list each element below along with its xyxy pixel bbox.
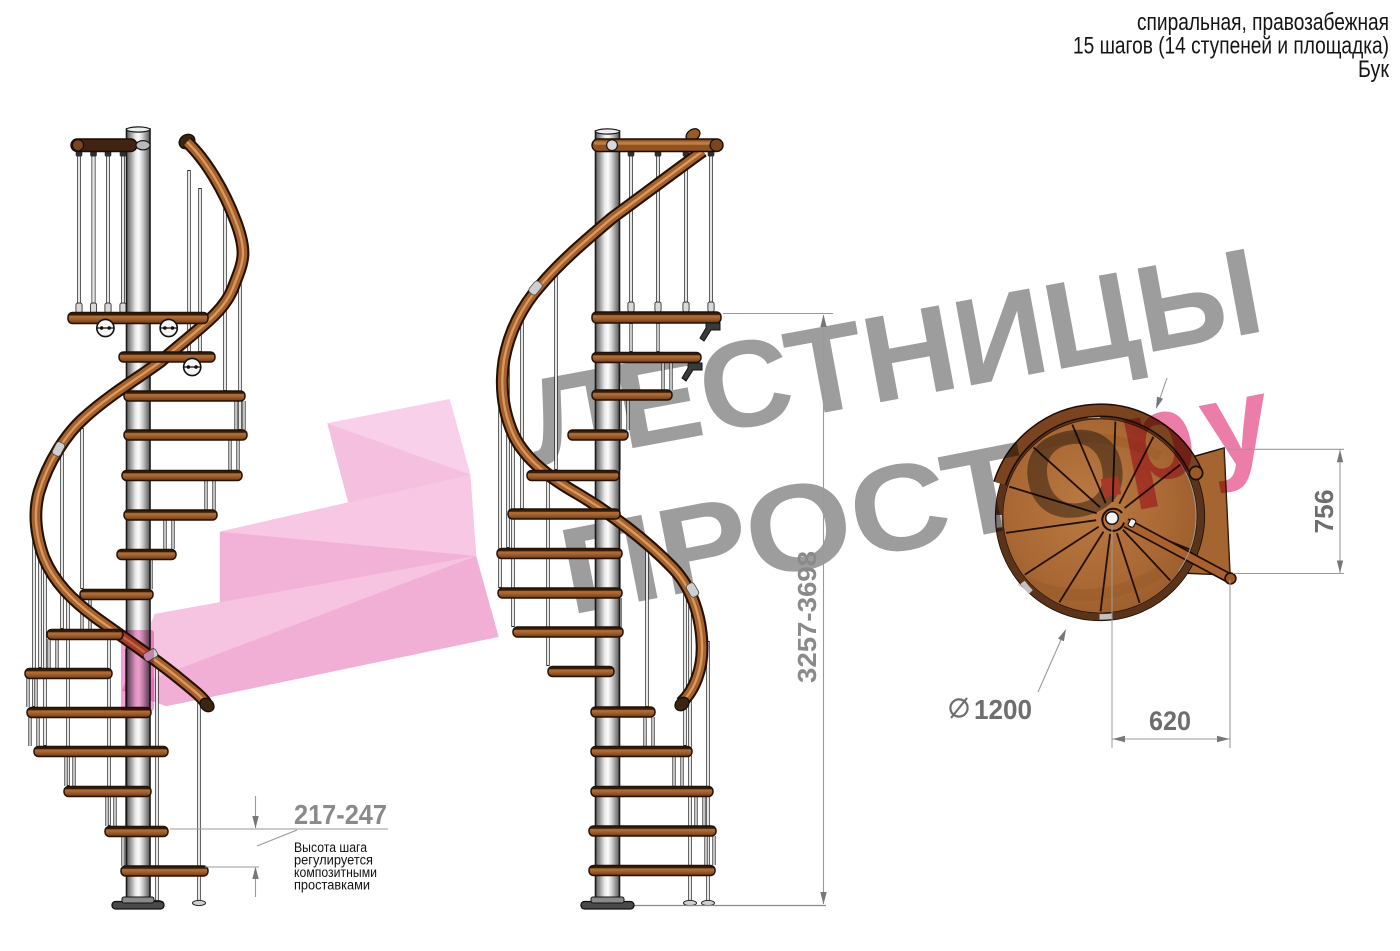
- svg-text:3257-3698: 3257-3698: [792, 551, 822, 683]
- svg-text:217-247: 217-247: [294, 799, 387, 830]
- svg-text:Бук: Бук: [1358, 56, 1389, 83]
- svg-text:15 шагов (14 ступеней и площад: 15 шагов (14 ступеней и площадка): [1073, 33, 1389, 60]
- svg-text:620: 620: [1149, 706, 1191, 736]
- svg-text:1200: 1200: [974, 694, 1032, 725]
- svg-text:756: 756: [1309, 490, 1339, 534]
- svg-text:проставками: проставками: [294, 878, 370, 893]
